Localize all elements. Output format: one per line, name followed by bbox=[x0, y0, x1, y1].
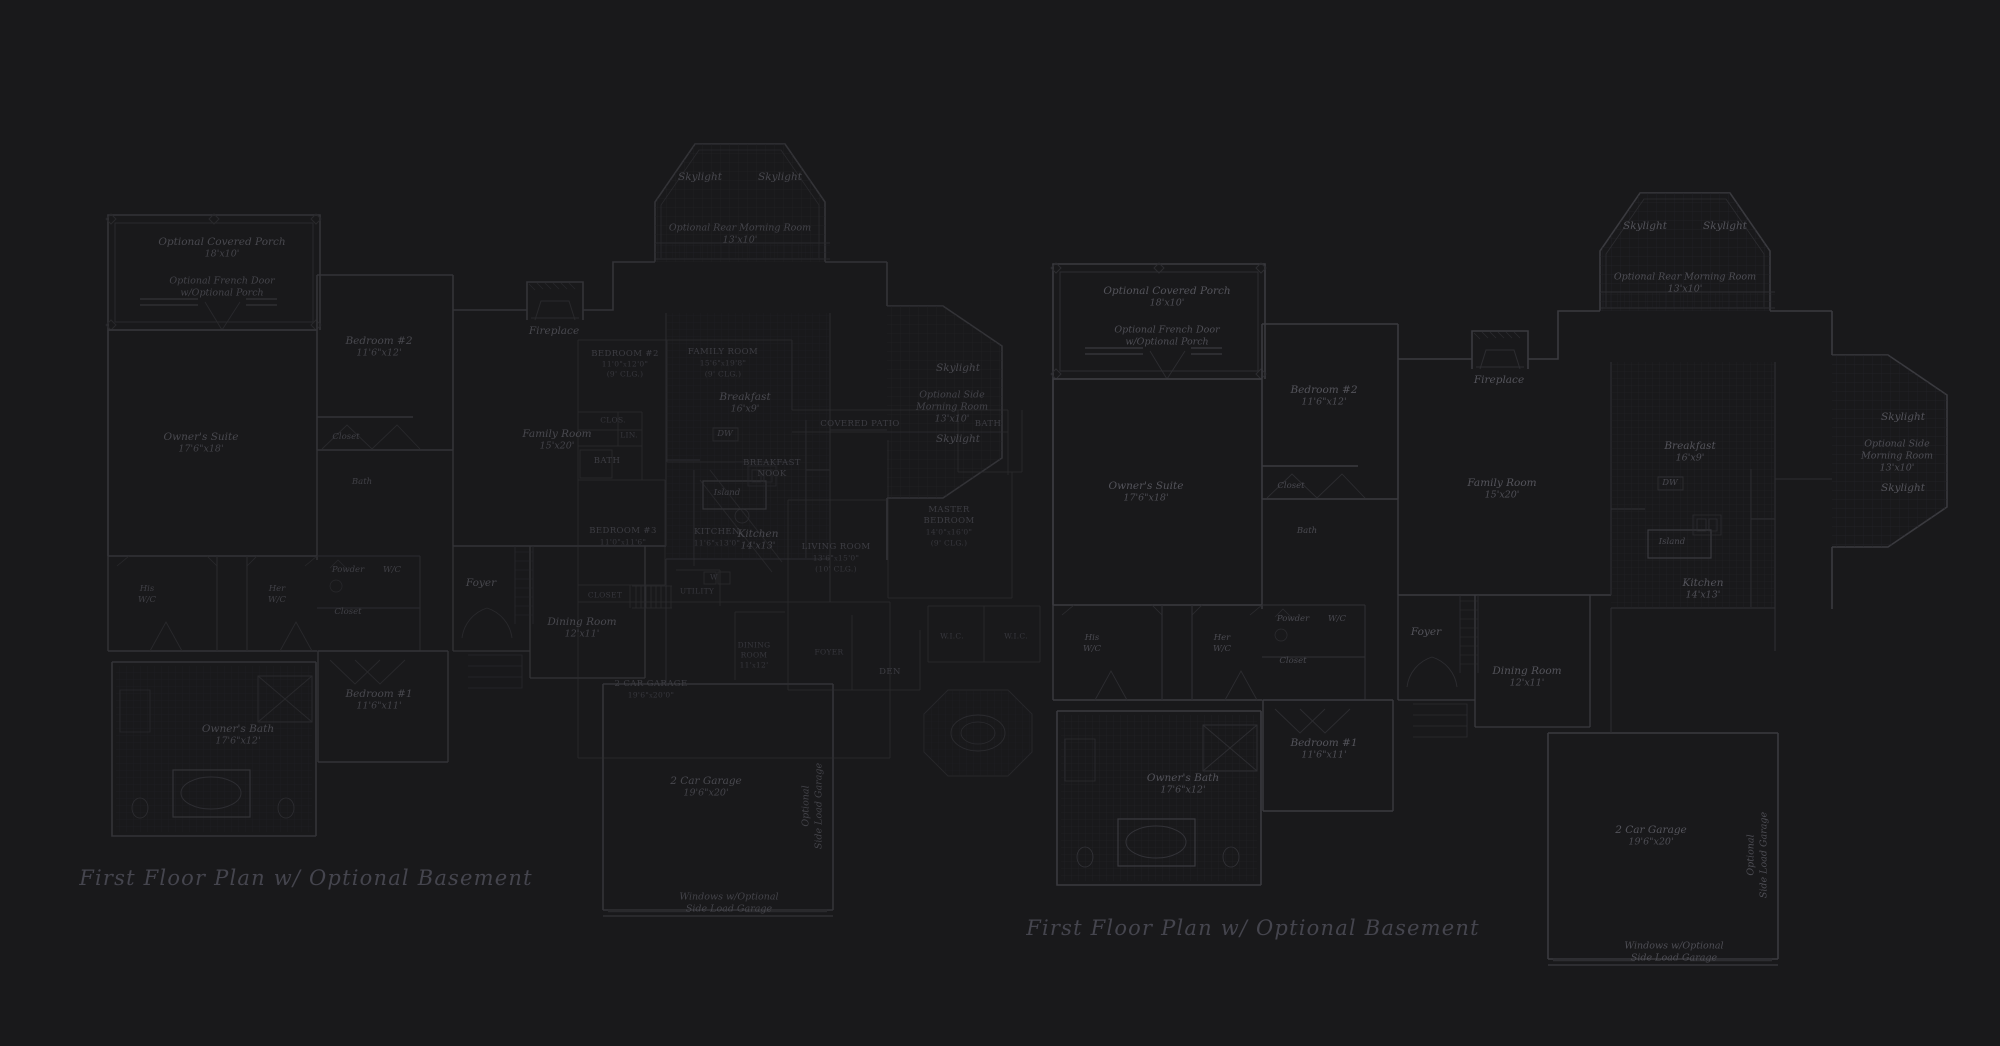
floorplan-page: Optional Covered Porch18'x10'Optional Fr… bbox=[0, 0, 2000, 1046]
plan-walls bbox=[106, 144, 1002, 916]
plan-walls bbox=[1051, 193, 1947, 965]
floorplan-linework bbox=[0, 0, 2000, 1046]
